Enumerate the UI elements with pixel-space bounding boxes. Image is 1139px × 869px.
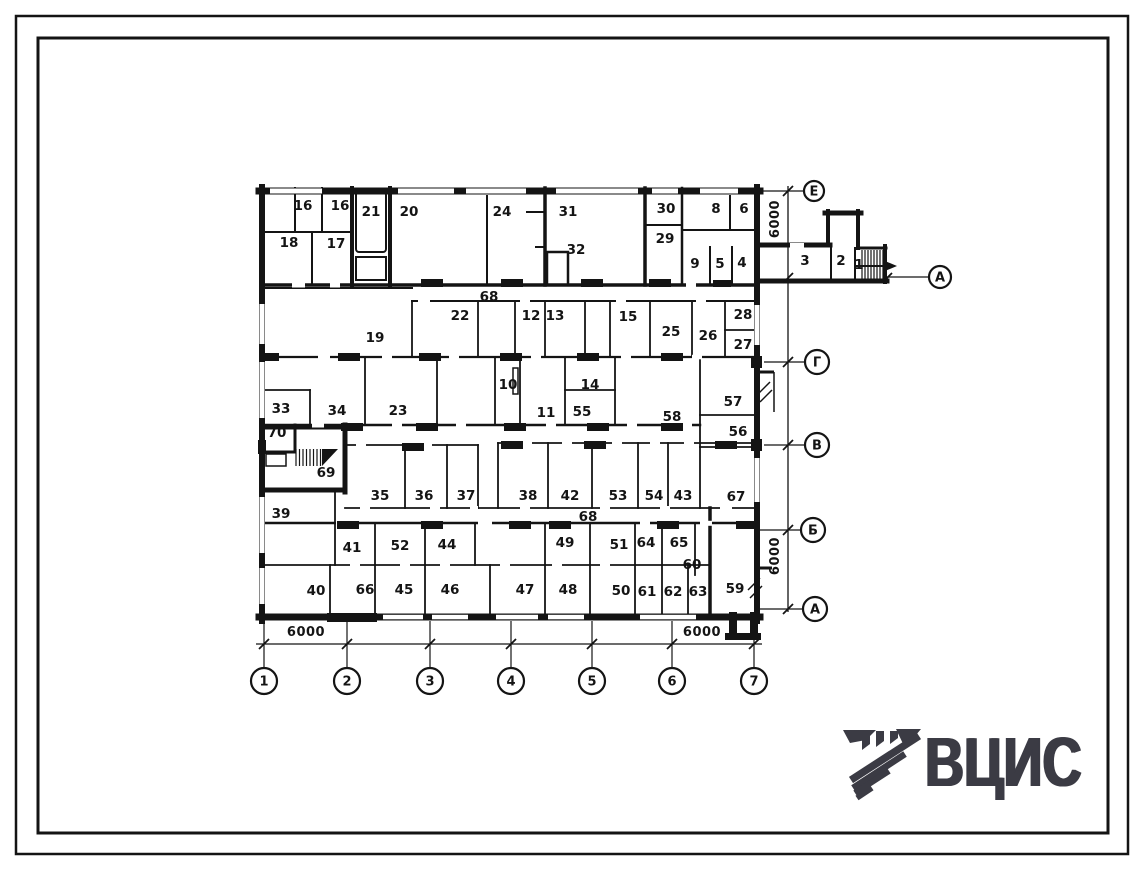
- room-label-24: 24: [493, 204, 512, 220]
- axis-label-7: 7: [749, 675, 758, 690]
- room-label-30: 30: [657, 201, 676, 217]
- room-label-10: 10: [499, 377, 518, 393]
- logo-text: ВЦИС: [925, 726, 1082, 800]
- room-label-62: 62: [664, 584, 683, 600]
- inner-border: [38, 38, 1108, 833]
- axis-label-2: 2: [342, 675, 351, 690]
- room-label-63: 63: [689, 584, 708, 600]
- dimension-label: 6000: [768, 200, 783, 238]
- room-label-27: 27: [734, 337, 753, 353]
- room-label-6: 6: [739, 201, 748, 217]
- room-label-44: 44: [438, 537, 457, 553]
- room-label-16: 16: [294, 198, 313, 214]
- room-label-64: 64: [637, 535, 656, 551]
- entrance-arrow-icon: [885, 261, 897, 271]
- dimension-label: 6000: [768, 537, 783, 575]
- room-label-41: 41: [343, 540, 362, 556]
- room-label-19: 19: [366, 330, 385, 346]
- room-label-39: 39: [272, 506, 291, 522]
- room-label-59: 59: [726, 581, 745, 597]
- room-label-14: 14: [581, 377, 600, 393]
- room-label-69: 69: [317, 465, 336, 481]
- room-label-23: 23: [389, 403, 408, 419]
- axis-label-6: 6: [667, 675, 676, 690]
- room-label-26: 26: [699, 328, 718, 344]
- room-label-52: 52: [391, 538, 410, 554]
- room-label-68: 68: [480, 289, 499, 305]
- room-label-42: 42: [561, 488, 580, 504]
- axis-label-В: В: [812, 439, 822, 454]
- axis-label-5: 5: [587, 675, 596, 690]
- room-label-1: 1: [854, 257, 863, 273]
- dimension-label: 6000: [683, 625, 721, 640]
- room-label-2: 2: [836, 253, 845, 269]
- room-label-45: 45: [395, 582, 414, 598]
- room-label-16: 16: [331, 198, 350, 214]
- room-label-46: 46: [441, 582, 460, 598]
- room-label-35: 35: [371, 488, 390, 504]
- axis-label-А: А: [935, 271, 945, 286]
- room-label-55: 55: [573, 404, 592, 420]
- axis-label-4: 4: [506, 675, 515, 690]
- room-label-34: 34: [328, 403, 347, 419]
- drawing-sheet: 1234567ЕГВБАА 16162120243132302986954181…: [0, 0, 1139, 869]
- axis-label-3: 3: [425, 675, 434, 690]
- axis-label-Б: Б: [808, 524, 818, 539]
- room-label-8: 8: [711, 201, 720, 217]
- room-label-56: 56: [729, 424, 748, 440]
- room-label-50: 50: [612, 583, 631, 599]
- room-label-53: 53: [609, 488, 628, 504]
- logo-icon: [843, 729, 921, 798]
- room-label-40: 40: [307, 583, 326, 599]
- axis-label-Е: Е: [810, 185, 819, 200]
- room-label-60: 60: [683, 557, 702, 573]
- room-label-37: 37: [457, 488, 476, 504]
- room-label-48: 48: [559, 582, 578, 598]
- room-label-13: 13: [546, 308, 565, 324]
- room-label-18: 18: [280, 235, 299, 251]
- room-label-65: 65: [670, 535, 689, 551]
- room-label-57: 57: [724, 394, 743, 410]
- room-label-17: 17: [327, 236, 346, 252]
- room-label-54: 54: [645, 488, 664, 504]
- room-label-68: 68: [579, 509, 598, 525]
- room-label-38: 38: [519, 488, 538, 504]
- room-label-5: 5: [715, 256, 724, 272]
- room-label-29: 29: [656, 231, 675, 247]
- room-label-20: 20: [400, 204, 419, 220]
- room-label-9: 9: [690, 256, 699, 272]
- stair-hatch-icon: [296, 449, 338, 466]
- room-label-33: 33: [272, 401, 291, 417]
- room-label-36: 36: [415, 488, 434, 504]
- axis-label-1: 1: [259, 675, 268, 690]
- axis-label-А: А: [810, 603, 820, 618]
- room-label-58: 58: [663, 409, 682, 425]
- room-label-47: 47: [516, 582, 535, 598]
- room-label-12: 12: [522, 308, 541, 324]
- room-label-32: 32: [567, 242, 586, 258]
- room-label-70: 70: [268, 425, 287, 441]
- room-label-61: 61: [638, 584, 657, 600]
- room-label-21: 21: [362, 204, 381, 220]
- room-label-49: 49: [556, 535, 575, 551]
- room-label-3: 3: [800, 253, 809, 269]
- room-label-28: 28: [734, 307, 753, 323]
- room-label-51: 51: [610, 537, 629, 553]
- room-label-43: 43: [674, 488, 693, 504]
- room-label-66: 66: [356, 582, 375, 598]
- room-label-4: 4: [737, 255, 746, 271]
- room-label-11: 11: [537, 405, 556, 421]
- room-label-25: 25: [662, 324, 681, 340]
- axis-label-Г: Г: [813, 356, 821, 371]
- room-label-67: 67: [727, 489, 746, 505]
- dimension-label: 6000: [287, 625, 325, 640]
- room-label-22: 22: [451, 308, 470, 324]
- room-label-15: 15: [619, 309, 638, 325]
- room-label-31: 31: [559, 204, 578, 220]
